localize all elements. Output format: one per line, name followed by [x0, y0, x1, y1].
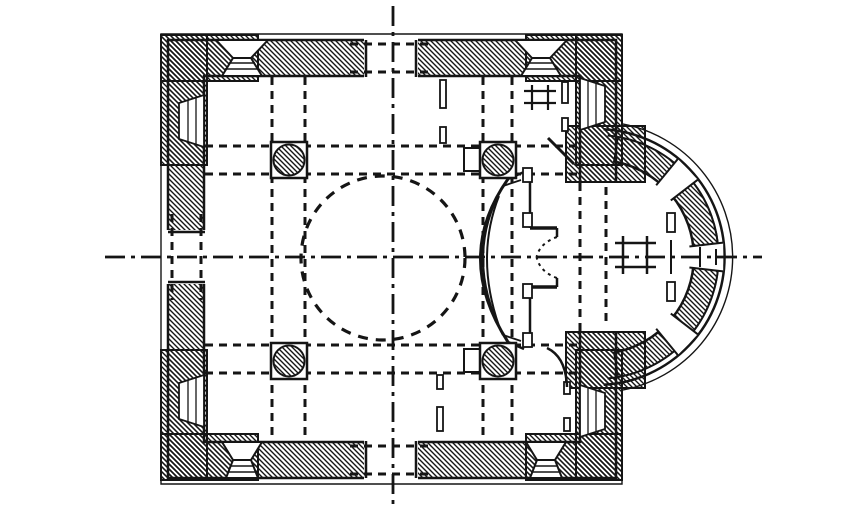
templon-pier-2 [523, 213, 532, 227]
pilaster-mark-se-2 [437, 407, 443, 431]
floor-plan-svg [0, 0, 850, 515]
column-ne-shaft [483, 145, 514, 176]
church-floor-plan [0, 0, 850, 515]
templon-pier-1 [523, 168, 532, 182]
altar-screen-block-south [667, 282, 675, 301]
pilaster-mark-ne-3 [562, 82, 568, 103]
west-wall-niche-north [179, 95, 204, 147]
west-wall-niche-south [179, 375, 204, 427]
altar-screen-block-north [667, 213, 675, 232]
templon-pier-4 [523, 333, 532, 347]
east-wall-niche-north [580, 78, 605, 130]
pilaster-mark-se-1 [437, 375, 443, 389]
pilaster-mark-ne-2 [440, 127, 446, 143]
column-se-shaft [483, 346, 514, 377]
pilaster-mark-se-4 [564, 418, 570, 431]
column-sw-shaft [274, 346, 305, 377]
templon-pier-3 [523, 284, 532, 298]
column-nw-shaft [274, 145, 305, 176]
pilaster-mark-ne-4 [562, 118, 568, 131]
east-wall-niche-south [580, 385, 605, 437]
pilaster-mark-ne-1 [440, 80, 446, 108]
